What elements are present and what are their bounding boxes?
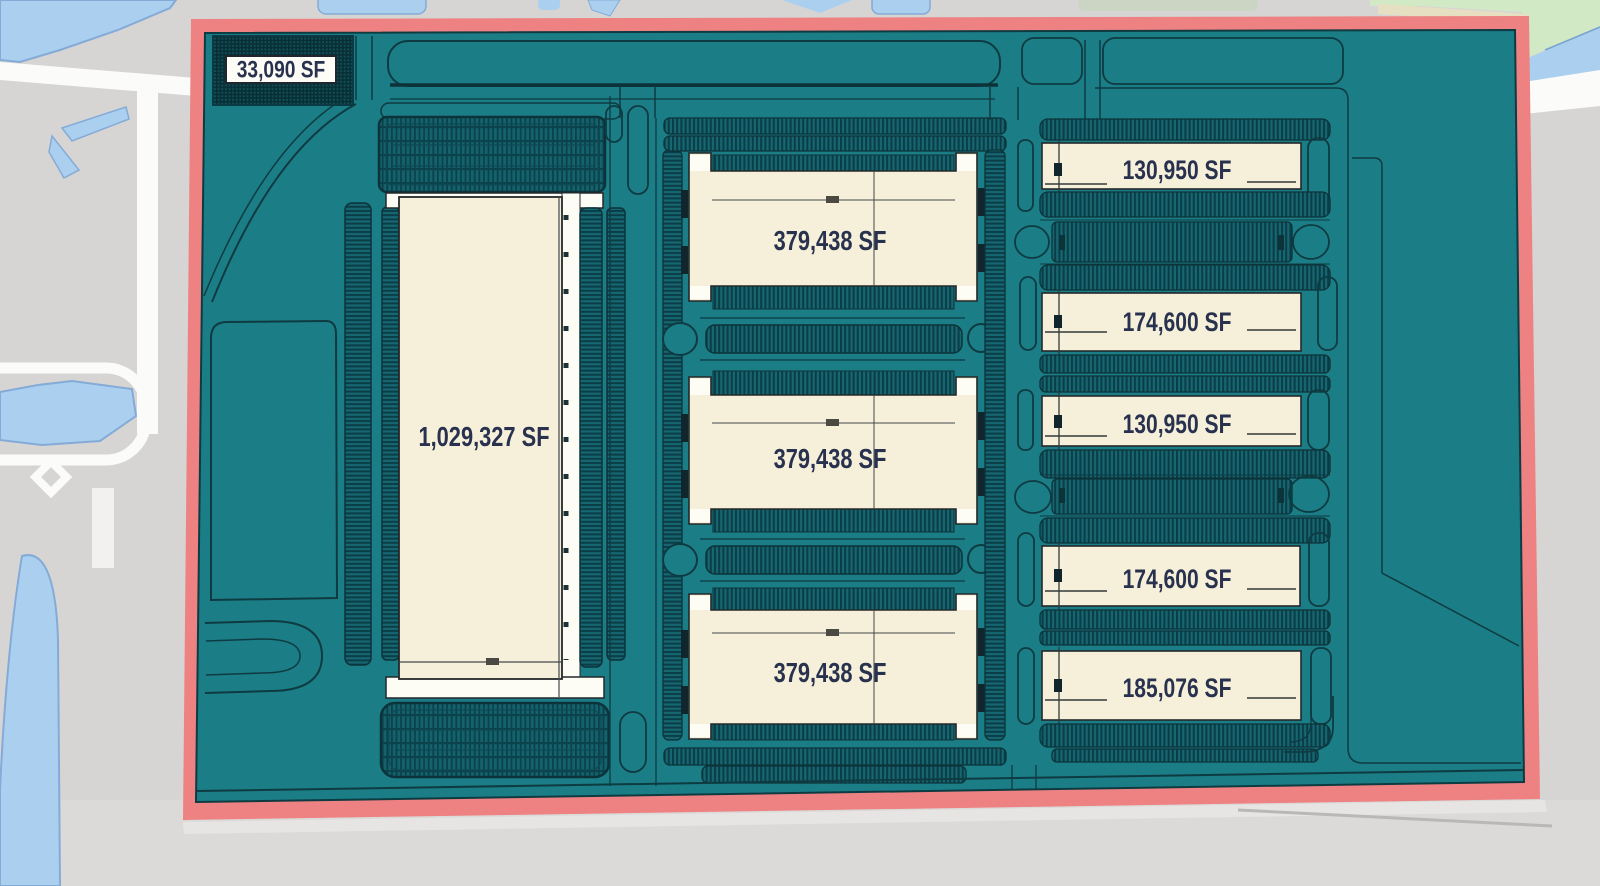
svg-text:174,600 SF: 174,600 SF [1123,308,1232,338]
svg-text:379,438 SF: 379,438 SF [774,443,887,474]
svg-text:130,950 SF: 130,950 SF [1123,410,1232,440]
svg-text:1,029,327 SF: 1,029,327 SF [418,421,549,452]
svg-text:185,076 SF: 185,076 SF [1123,674,1232,704]
svg-text:174,600 SF: 174,600 SF [1123,565,1232,595]
svg-text:379,438 SF: 379,438 SF [774,657,887,688]
svg-text:379,438 SF: 379,438 SF [774,225,887,256]
svg-text:130,950 SF: 130,950 SF [1123,156,1232,186]
svg-text:33,090 SF: 33,090 SF [237,55,326,83]
